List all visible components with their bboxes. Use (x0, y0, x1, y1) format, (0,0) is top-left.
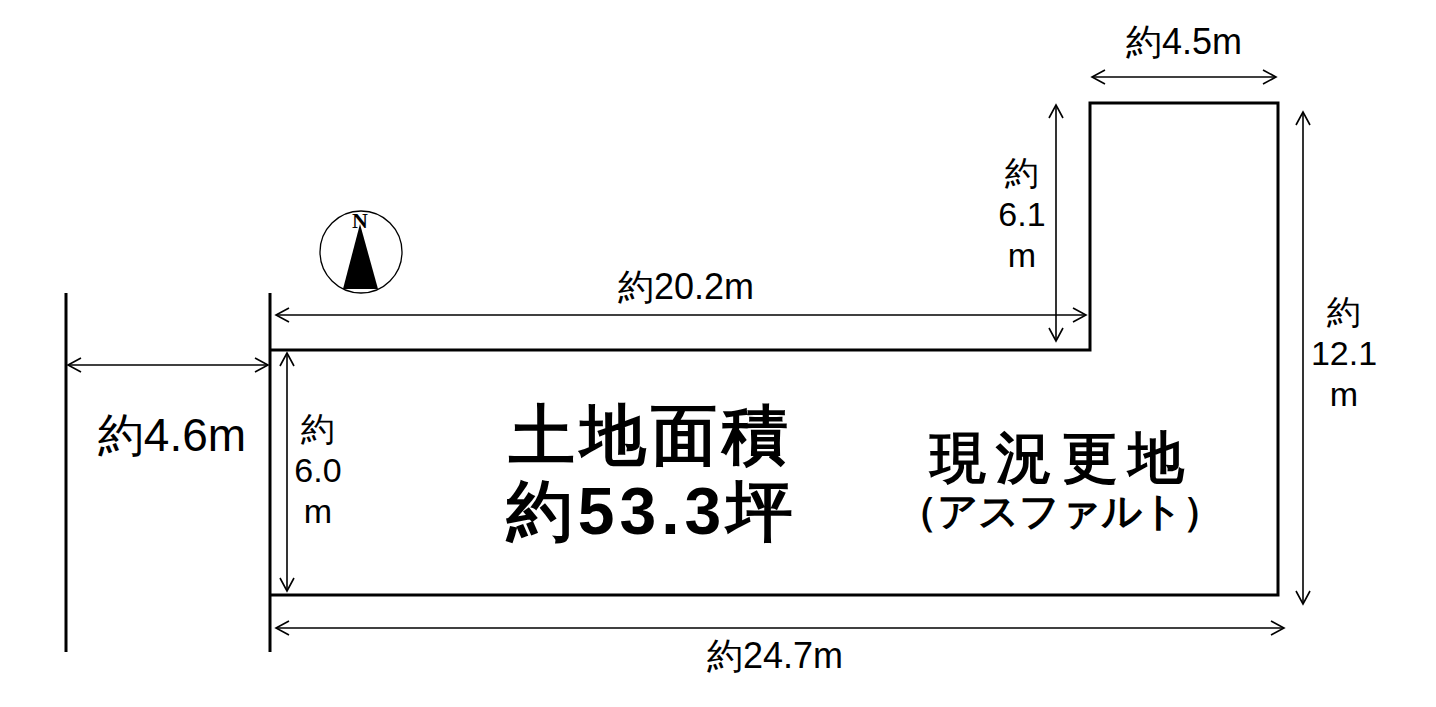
dim-main-top-width-label: 約20.2m (618, 268, 754, 306)
dim-main-left-depth-arrow (280, 353, 294, 591)
site-plan-canvas: N 約4.5m 約 6.1 m 約20.2m 約4.6m 約 6.0 m 約 1… (0, 0, 1436, 707)
dim-flag-top-width-arrow (1092, 70, 1276, 84)
dim-bottom-width-label: 約24.7m (707, 637, 843, 675)
dim-road-width-label: 約4.6m (98, 405, 246, 467)
dim-flag-height-label: 約 6.1 m (998, 153, 1045, 276)
dim-road-width-arrow (68, 358, 268, 372)
land-area-value: 約53.3坪 (507, 467, 797, 557)
dim-main-left-depth-label: 約 6.0 m (294, 409, 341, 532)
plan-svg (0, 0, 1436, 707)
compass-north-label: N (352, 208, 368, 234)
site-status-line2: （アスファルト） (897, 484, 1223, 539)
dim-bottom-width-arrow (276, 621, 1284, 635)
dim-flag-height-arrow (1049, 105, 1063, 341)
dim-right-depth-arrow (1296, 112, 1310, 604)
dim-main-top-width-arrow (276, 308, 1086, 322)
dim-right-depth-label: 約 12.1 m (1311, 292, 1377, 415)
dim-flag-top-width-label: 約4.5m (1126, 23, 1242, 61)
